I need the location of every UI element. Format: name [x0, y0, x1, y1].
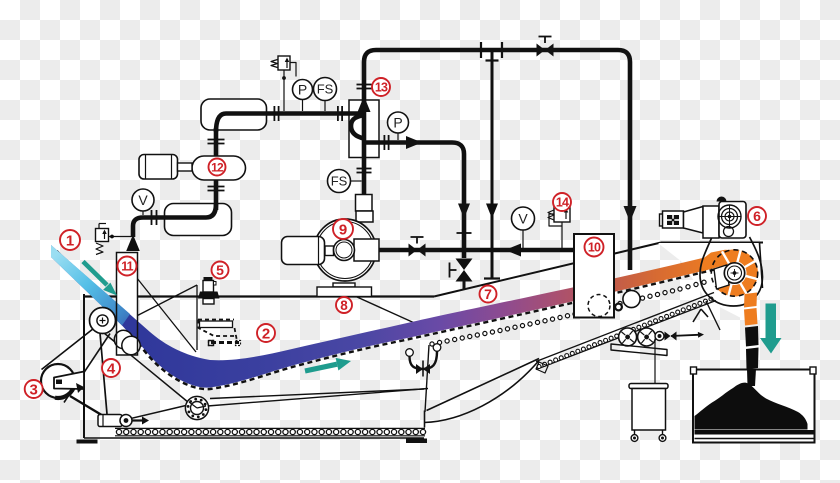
svg-text:5: 5 — [216, 262, 224, 278]
svg-text:3: 3 — [30, 381, 38, 398]
svg-text:14: 14 — [556, 196, 569, 210]
svg-text:8: 8 — [340, 298, 348, 313]
svg-text:1: 1 — [66, 232, 74, 249]
svg-text:10: 10 — [588, 241, 601, 255]
svg-text:7: 7 — [484, 286, 492, 302]
svg-text:P: P — [393, 114, 402, 130]
svg-text:P: P — [298, 81, 307, 97]
svg-text:9: 9 — [339, 221, 347, 238]
svg-text:13: 13 — [375, 81, 388, 95]
svg-text:6: 6 — [753, 208, 761, 224]
svg-text:FS: FS — [331, 174, 348, 189]
svg-text:FS: FS — [317, 82, 334, 97]
svg-text:11: 11 — [121, 260, 133, 274]
svg-text:V: V — [518, 210, 528, 226]
svg-text:2: 2 — [262, 325, 270, 342]
svg-text:4: 4 — [107, 360, 116, 377]
svg-text:V: V — [138, 192, 148, 208]
svg-text:12: 12 — [211, 160, 224, 174]
